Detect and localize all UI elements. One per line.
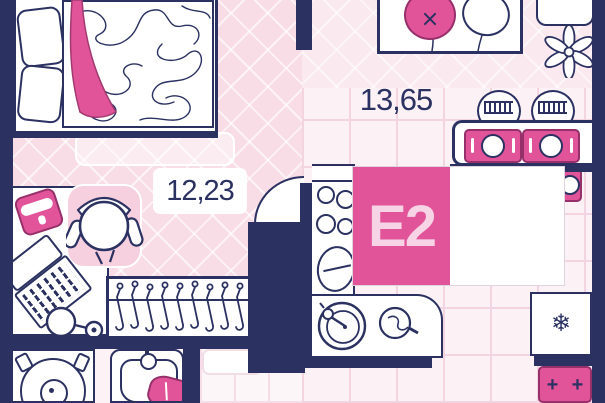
knife-icon: [323, 264, 351, 272]
kitchen-sink: [314, 298, 370, 354]
area-label-bedroom: 12,23: [153, 168, 247, 214]
area-label-living: 13,65: [346, 80, 446, 120]
hanger-icon: [206, 284, 213, 330]
living-area-value: 13,65: [360, 82, 433, 118]
wall-under-fridge: [534, 356, 592, 366]
counter-divider: [312, 180, 353, 182]
hanger-icon: [161, 282, 168, 328]
washer-drum-inner: [40, 379, 68, 403]
bathroom-sink: [110, 349, 184, 403]
handbag-clasp: [37, 215, 46, 226]
handbag-flap: [19, 197, 54, 218]
faucet-icon: [140, 353, 157, 370]
side-table: [536, 0, 594, 26]
wall-kitchen-left: [300, 183, 312, 368]
pillow: [16, 64, 66, 124]
knife-icon: [570, 138, 573, 153]
unit-card-blank: [450, 167, 564, 285]
knife-icon: [512, 138, 515, 153]
hanger-icon: [176, 283, 183, 329]
fridge: ❄: [530, 292, 592, 356]
hangers: [111, 279, 252, 336]
wall-center-block: [248, 222, 305, 373]
hanger-icon: [116, 283, 123, 329]
unit-badge: E2: [353, 167, 450, 285]
stool-band: [484, 101, 513, 114]
burner-cross-icon: +: [572, 375, 584, 395]
burner-icon: [317, 186, 335, 204]
bed: [13, 0, 218, 138]
wall-top-stub: [296, 0, 312, 50]
washer-dot: [49, 388, 54, 393]
wall-bathroom-right: [183, 345, 200, 403]
blanket: [62, 0, 214, 128]
hanger-icon: [191, 281, 198, 327]
snowflake-icon: ❄: [551, 312, 571, 336]
stove-4-burner: [314, 184, 355, 242]
wall-kitchen-bottom: [300, 356, 432, 368]
placemat: [464, 129, 522, 163]
bar-counter: [452, 120, 597, 166]
floorplan: 12,23 13,65: [0, 0, 605, 403]
washing-machine: [13, 349, 95, 403]
stool-band: [538, 101, 567, 114]
wall-right: [592, 0, 605, 403]
plate: [539, 134, 563, 158]
fork-icon: [471, 138, 474, 153]
towel-fold: [165, 382, 168, 400]
hanger-icon: [221, 282, 228, 328]
fork-icon: [529, 138, 532, 153]
pillow: [16, 6, 67, 69]
burner-icon: [316, 214, 336, 234]
pan: [376, 304, 422, 346]
hanger-icon: [146, 284, 153, 330]
wall-left: [0, 0, 13, 403]
placemat: [522, 129, 580, 163]
office-chair: [66, 184, 144, 272]
wall-bathroom-top: [13, 336, 253, 349]
unit-badge-label: E2: [368, 193, 435, 260]
wardrobe: [106, 276, 253, 336]
unit-card: E2: [352, 166, 565, 286]
burner-cross-icon: +: [547, 375, 559, 395]
hanger-icon: [131, 281, 138, 327]
hob-2-burner: + +: [538, 366, 592, 403]
plate: [481, 134, 505, 158]
bedroom-area-value: 12,23: [166, 175, 234, 208]
plant-icon: [542, 26, 596, 78]
hanger-icon: [236, 283, 243, 329]
